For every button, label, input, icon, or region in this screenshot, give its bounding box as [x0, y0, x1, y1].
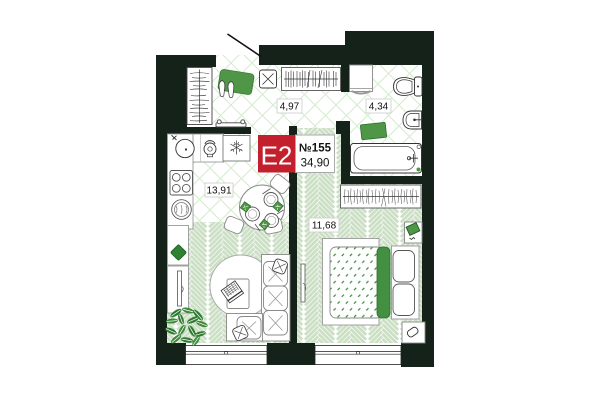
svg-text:№155: №155	[299, 143, 332, 155]
svg-text:13,91: 13,91	[206, 186, 231, 197]
svg-text:E2: E2	[261, 140, 293, 170]
svg-text:34,90: 34,90	[301, 158, 330, 170]
svg-text:11,68: 11,68	[312, 221, 337, 232]
svg-text:4,34: 4,34	[369, 102, 389, 113]
svg-text:4,97: 4,97	[280, 102, 300, 113]
